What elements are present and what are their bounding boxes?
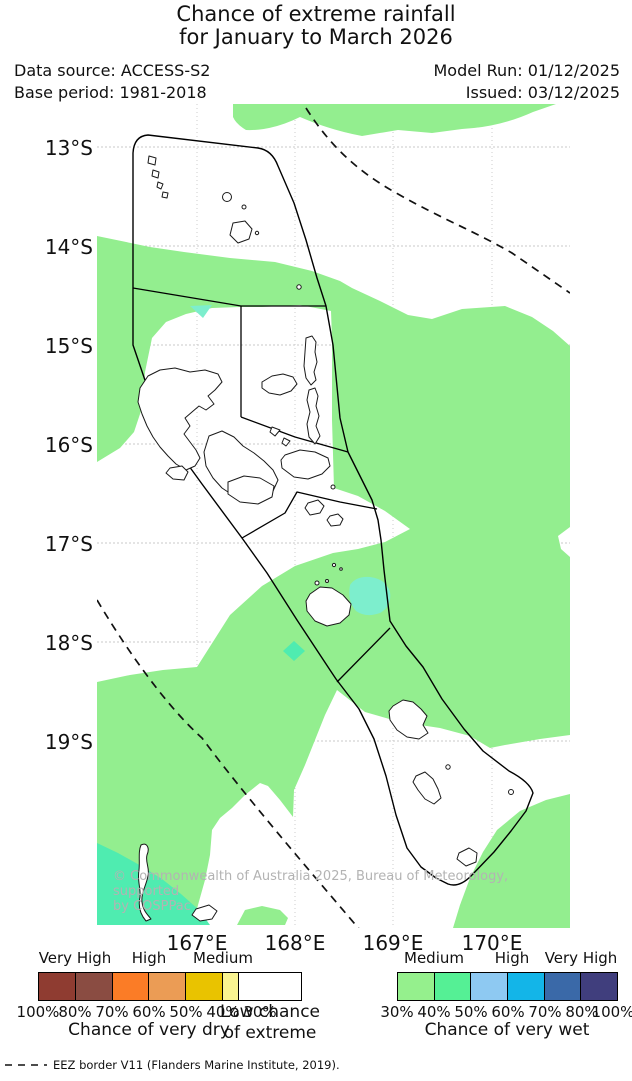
wet-legend-title: Chance of very wet [425, 1020, 590, 1040]
lat-tick-19s: 19°S [33, 730, 93, 754]
wet-colorbar-cell-1 [434, 972, 472, 1001]
wet-pct-100: 100% [592, 1003, 632, 1021]
lat-tick-14s: 14°S [33, 235, 93, 259]
dry-pct-50: 50% [169, 1003, 202, 1021]
wet-colorbar-cell-0 [397, 972, 435, 1001]
low-chance-label-line2: of extreme [224, 1023, 317, 1043]
copyright-watermark-line2: by COSPPac [113, 899, 533, 914]
dry-pct-100: 100% [17, 1003, 60, 1021]
wet-colorbar-cell-4 [544, 972, 582, 1001]
wet-pct-40: 40% [417, 1003, 450, 1021]
dry-pct-60: 60% [132, 1003, 165, 1021]
wet-pct-70: 70% [528, 1003, 561, 1021]
dry-colorbar [38, 972, 260, 1001]
copyright-watermark-line1: © Commonwealth of Australia 2025, Bureau… [113, 869, 533, 899]
dry-pct-80: 80% [58, 1003, 91, 1021]
footer-eez-note-text: EEZ border V11 (Flanders Marine Institut… [53, 1058, 340, 1072]
rainfall-outlook-page: Chance of extreme rainfall for January t… [0, 0, 632, 1081]
dry-colorbar-cell-0 [38, 972, 76, 1001]
eez-dash-sample [5, 1062, 47, 1068]
dry-colorbar-cell-3 [148, 972, 186, 1001]
dry-colorbar-cell-2 [112, 972, 150, 1001]
wet-level-medium: Medium [404, 949, 464, 967]
lon-tick-168e: 168°E [255, 931, 335, 955]
lat-tick-18s: 18°S [33, 631, 93, 655]
dry-pct-70: 70% [95, 1003, 128, 1021]
lat-tick-15s: 15°S [33, 334, 93, 358]
rainfall-probability-map [0, 0, 632, 1081]
dry-level-medium: Medium [193, 949, 253, 967]
wet-pct-60: 60% [491, 1003, 524, 1021]
dry-colorbar-cell-4 [185, 972, 223, 1001]
dry-colorbar-cell-1 [75, 972, 113, 1001]
lat-tick-13s: 13°S [33, 136, 93, 160]
lat-tick-17s: 17°S [33, 532, 93, 556]
wet-colorbar-cell-2 [470, 972, 508, 1001]
low-chance-box [238, 972, 302, 1001]
wet-pct-50: 50% [454, 1003, 487, 1021]
wet-colorbar [397, 972, 618, 1001]
lat-tick-16s: 16°S [33, 433, 93, 457]
dry-legend-title: Chance of very dry [68, 1020, 230, 1040]
wet-level-high: High [495, 949, 529, 967]
wet-pct-30: 30% [380, 1003, 413, 1021]
footer-eez-note: EEZ border V11 (Flanders Marine Institut… [5, 1058, 340, 1072]
copyright-watermark: © Commonwealth of Australia 2025, Bureau… [113, 869, 533, 914]
wet-colorbar-cell-3 [507, 972, 545, 1001]
dry-level-very-high: Very High [39, 949, 112, 967]
low-chance-label-line1: Low chance [220, 1002, 320, 1022]
dry-level-high: High [132, 949, 166, 967]
wet-colorbar-cell-5 [580, 972, 618, 1001]
wet-level-very-high: Very High [545, 949, 618, 967]
